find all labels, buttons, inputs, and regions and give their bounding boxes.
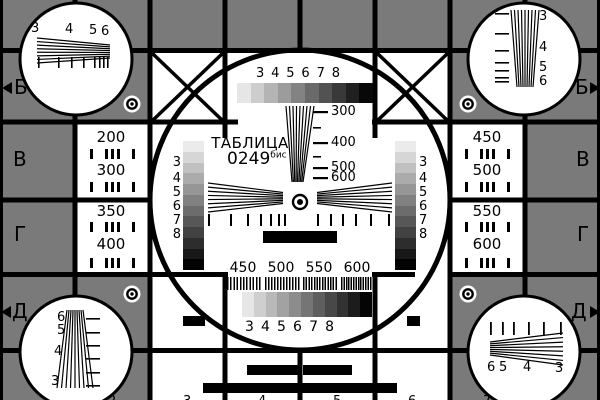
table-number: 0249бис <box>227 151 287 168</box>
marker-triangle-left <box>1 306 11 318</box>
corner-circle <box>20 296 132 400</box>
cell-tick-glyphs <box>75 182 150 192</box>
grayscale-step-label: 5 <box>173 186 181 199</box>
edge-column-digit: 4 <box>258 395 266 400</box>
cell-frequency-label: 550 <box>451 204 523 219</box>
frequency-stripes-550 <box>303 277 338 290</box>
edge-column-digit: 2 <box>108 395 116 400</box>
row-letter: Б <box>575 77 589 97</box>
corner-resolution-label: 6 <box>101 25 109 38</box>
cell-frequency-label: 600 <box>451 237 523 252</box>
wedge-frequency-label: 400 <box>331 136 356 149</box>
cell-frequency-label: 200 <box>75 130 147 145</box>
frequency-stripes-600 <box>341 277 372 290</box>
table-number-value: 0249 <box>227 149 270 169</box>
scale-label: 7 <box>309 319 318 335</box>
grayscale-step-label: 5 <box>419 186 427 199</box>
corner-circle <box>20 3 132 115</box>
cell-tick-glyphs <box>75 258 150 268</box>
corner-circle <box>468 3 580 115</box>
scale-label: 6 <box>301 66 309 81</box>
scale-label: 4 <box>261 319 270 335</box>
scale-label: 4 <box>271 66 279 81</box>
scale-label: 7 <box>317 66 325 81</box>
cell-frequency-label: 450 <box>451 130 523 145</box>
grayscale-step-label: 6 <box>419 200 427 213</box>
black-square-left <box>183 316 205 326</box>
frequency-band-label: 500 <box>264 261 298 275</box>
corner-resolution-label: 5 <box>499 361 507 374</box>
scale-label: 5 <box>286 66 294 81</box>
marker-triangle-right <box>590 82 600 94</box>
cell-tick-glyphs <box>75 149 150 159</box>
center-black-bar <box>263 231 337 243</box>
black-square-right <box>407 316 420 326</box>
cell-frequency-label: 400 <box>75 237 147 252</box>
scale-label: 6 <box>293 319 302 335</box>
corner-circle <box>468 296 580 400</box>
frequency-stripes-500 <box>265 277 300 290</box>
frequency-stripes-450 <box>227 277 262 290</box>
edge-column-digit: 4 <box>258 0 266 3</box>
cell-frequency-label: 350 <box>75 204 147 219</box>
grayscale-step-label: 4 <box>419 172 427 185</box>
edge-column-digit: 7 <box>483 395 491 400</box>
bullseye-marker <box>124 286 141 303</box>
cell-tick-glyphs <box>450 258 525 268</box>
edge-column-digit: 6 <box>408 0 416 3</box>
grayscale-step-label: 7 <box>173 214 181 227</box>
corner-resolution-label: 3 <box>539 10 547 23</box>
test-pattern-card: ТАБЛИЦА 0249бис 3 4 5 6 7 8 300 400 500 … <box>0 0 600 400</box>
edge-column-digit: 5 <box>333 0 341 3</box>
cell-tick-glyphs <box>450 222 525 232</box>
corner-resolution-label: 4 <box>54 345 62 358</box>
frequency-band-label: 600 <box>340 261 374 275</box>
bullseye-marker <box>460 286 477 303</box>
grayscale-bar-left <box>183 141 204 270</box>
bottom-bar-wide <box>203 383 397 393</box>
corner-resolution-label: 3 <box>51 375 59 388</box>
corner-resolution-label: 4 <box>65 23 73 36</box>
corner-resolution-label: 5 <box>539 61 547 74</box>
scale-label: 5 <box>277 319 286 335</box>
row-letter: Г <box>577 224 589 244</box>
corner-resolution-label: 5 <box>89 24 97 37</box>
row-letter: В <box>13 149 27 169</box>
row-letter: Г <box>14 224 26 244</box>
corner-resolution-label: 6 <box>487 361 495 374</box>
grayscale-step-label: 8 <box>173 228 181 241</box>
edge-column-digit: 6 <box>408 395 416 400</box>
corner-resolution-label: 6 <box>539 75 547 88</box>
grayscale-step-label: 4 <box>173 172 181 185</box>
grayscale-step-label: 8 <box>419 228 427 241</box>
top-scale-labels: 3 4 5 6 7 8 <box>256 66 340 81</box>
corner-resolution-label: 4 <box>539 41 547 54</box>
edge-column-digit: 5 <box>333 395 341 400</box>
cell-tick-glyphs <box>450 149 525 159</box>
cell-tick-glyphs <box>75 222 150 232</box>
cell-tick-glyphs <box>450 182 525 192</box>
bullseye-marker <box>124 96 141 113</box>
corner-resolution-label: 5 <box>57 324 65 337</box>
table-number-suffix: бис <box>270 150 286 160</box>
scale-label: 8 <box>332 66 340 81</box>
cell-frequency-label: 500 <box>451 163 523 178</box>
bottom-bar-upper-right <box>303 365 352 375</box>
corner-resolution-label: 3 <box>555 362 563 375</box>
scale-label: 8 <box>325 319 334 335</box>
cell-frequency-label: 300 <box>75 163 147 178</box>
corner-resolution-label: 4 <box>523 361 531 374</box>
grayscale-step-label: 7 <box>419 214 427 227</box>
edge-column-digit: 3 <box>183 395 191 400</box>
grayscale-step-label: 6 <box>173 200 181 213</box>
bullseye-marker <box>460 96 477 113</box>
wedge-frequency-label: 300 <box>331 105 356 118</box>
edge-column-digit: 3 <box>183 0 191 3</box>
scale-label: 3 <box>256 66 264 81</box>
marker-triangle-right <box>590 306 600 318</box>
grayscale-bar-top <box>237 83 373 103</box>
corner-resolution-label: 3 <box>31 22 39 35</box>
marker-triangle-left <box>2 82 12 94</box>
row-letter: Д <box>12 301 28 321</box>
row-letter: В <box>576 149 590 169</box>
wedge-frequency-label: 600 <box>331 171 356 184</box>
scale-label: 3 <box>245 319 254 335</box>
bottom-scale-labels: 3 4 5 6 7 8 <box>245 319 334 335</box>
grayscale-step-label: 3 <box>419 156 427 169</box>
grayscale-bar-right <box>395 141 416 270</box>
frequency-band-label: 550 <box>302 261 336 275</box>
grayscale-step-label: 3 <box>173 156 181 169</box>
bottom-bar-upper-left <box>247 365 299 375</box>
test-card-graphics <box>0 0 600 400</box>
grayscale-bar-bottom <box>242 292 372 317</box>
row-letter: Б <box>14 77 28 97</box>
row-letter: Д <box>571 301 587 321</box>
frequency-band-label: 450 <box>226 261 260 275</box>
